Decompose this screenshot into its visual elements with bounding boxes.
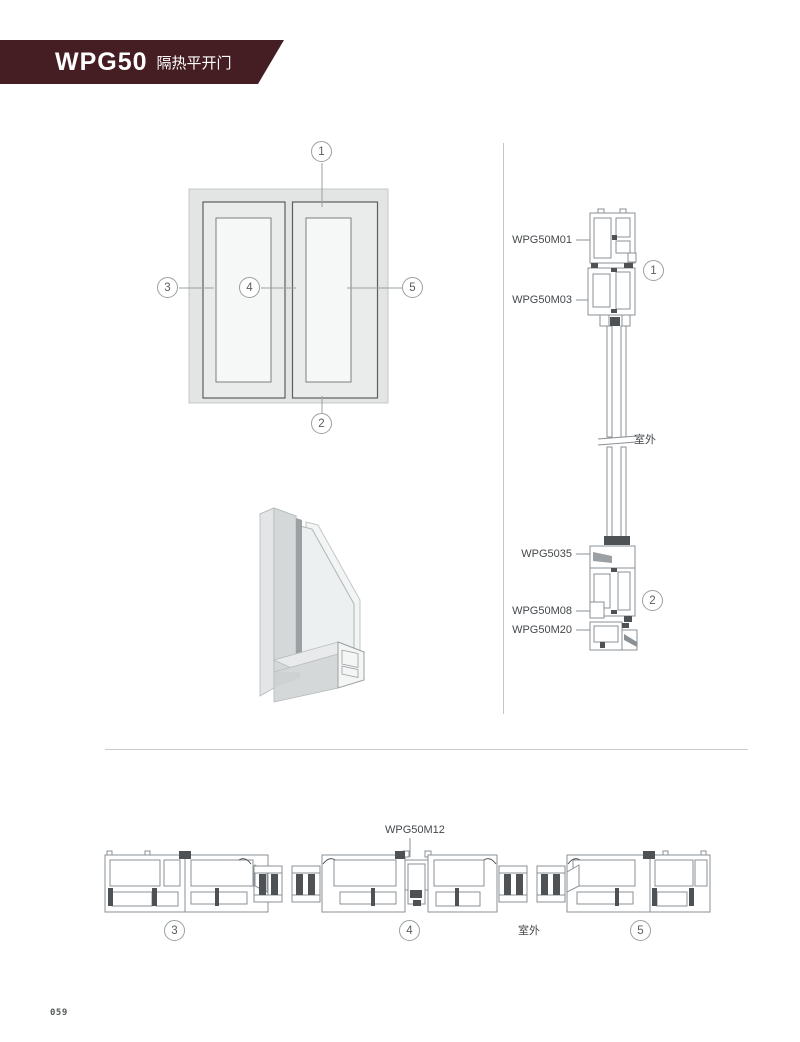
label-outdoor-vertical: 室外 [634,433,656,447]
door-elevation-diagram [140,140,440,440]
label-wpg50m08: WPG50M08 [490,604,572,618]
label-wpg50m03: WPG50M03 [490,293,572,307]
header-banner: WPG50 隔热平开门 [0,40,284,84]
product-name: 隔热平开门 [157,53,232,71]
vertical-section-callout-1: 1 [643,260,664,281]
label-wpg50m20: WPG50M20 [490,623,572,637]
elevation-callout-3: 3 [157,277,178,298]
horizontal-section-callout-5: 5 [630,920,651,941]
horizontal-section-callout-4: 4 [399,920,420,941]
elevation-callout-1: 1 [311,141,332,162]
elevation-callout-4: 4 [239,277,260,298]
catalog-page: WPG50 隔热平开门 1 2 3 4 5 [0,0,800,1042]
vertical-section-drawing [540,190,740,670]
horizontal-section-callout-3: 3 [164,920,185,941]
elevation-callout-2: 2 [311,413,332,434]
label-wpg50m12: WPG50M12 [385,823,445,837]
vertical-section-callout-2: 2 [642,590,663,611]
page-number: 059 [50,1008,68,1018]
elevation-callout-5: 5 [402,277,423,298]
label-wpg50m01: WPG50M01 [490,233,572,247]
section-separator-rule [105,749,748,750]
label-outdoor-horizontal: 室外 [518,924,540,938]
isometric-profile-render [238,492,413,707]
label-wpg5035: WPG5035 [490,547,572,561]
product-code: WPG50 [55,50,148,75]
